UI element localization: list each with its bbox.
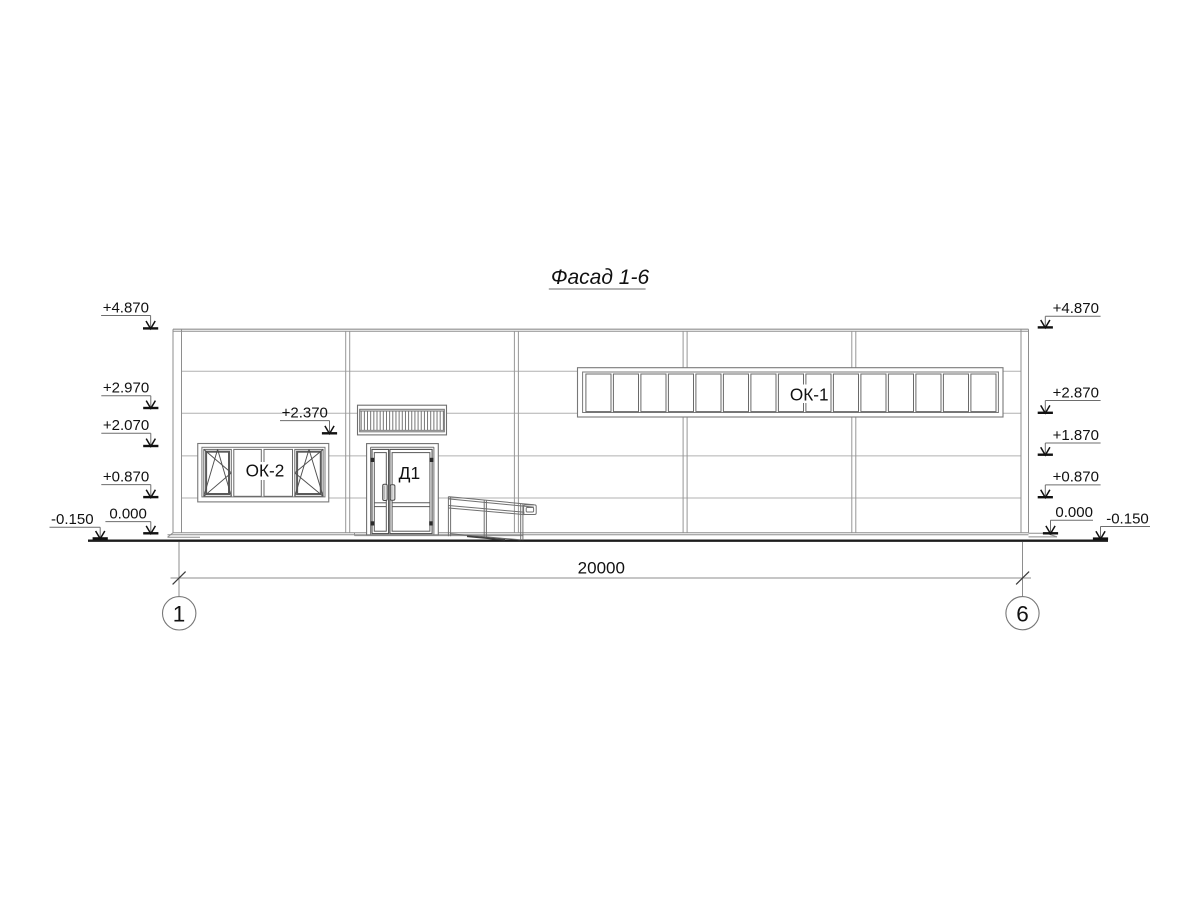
- svg-text:-0.150: -0.150: [51, 511, 94, 528]
- svg-text:-0.150: -0.150: [1106, 510, 1149, 527]
- svg-text:Д1: Д1: [399, 463, 420, 483]
- svg-text:+0.870: +0.870: [1053, 469, 1099, 486]
- svg-text:+4.870: +4.870: [103, 299, 149, 316]
- svg-text:+2.970: +2.970: [103, 380, 149, 397]
- svg-text:ОК-1: ОК-1: [790, 384, 829, 404]
- svg-text:20000: 20000: [578, 559, 625, 578]
- svg-text:ОК-2: ОК-2: [246, 461, 285, 481]
- svg-text:+2.070: +2.070: [103, 417, 149, 434]
- svg-text:6: 6: [1016, 601, 1029, 626]
- svg-text:Фасад 1-6: Фасад 1-6: [551, 266, 650, 289]
- svg-text:+1.870: +1.870: [1053, 427, 1099, 444]
- svg-text:0.000: 0.000: [109, 505, 147, 522]
- svg-text:+4.870: +4.870: [1053, 300, 1099, 317]
- svg-text:1: 1: [173, 602, 186, 627]
- svg-text:+0.870: +0.870: [103, 468, 149, 485]
- svg-text:+2.870: +2.870: [1053, 384, 1099, 401]
- svg-text:0.000: 0.000: [1055, 504, 1093, 521]
- svg-text:+2.370: +2.370: [282, 404, 328, 421]
